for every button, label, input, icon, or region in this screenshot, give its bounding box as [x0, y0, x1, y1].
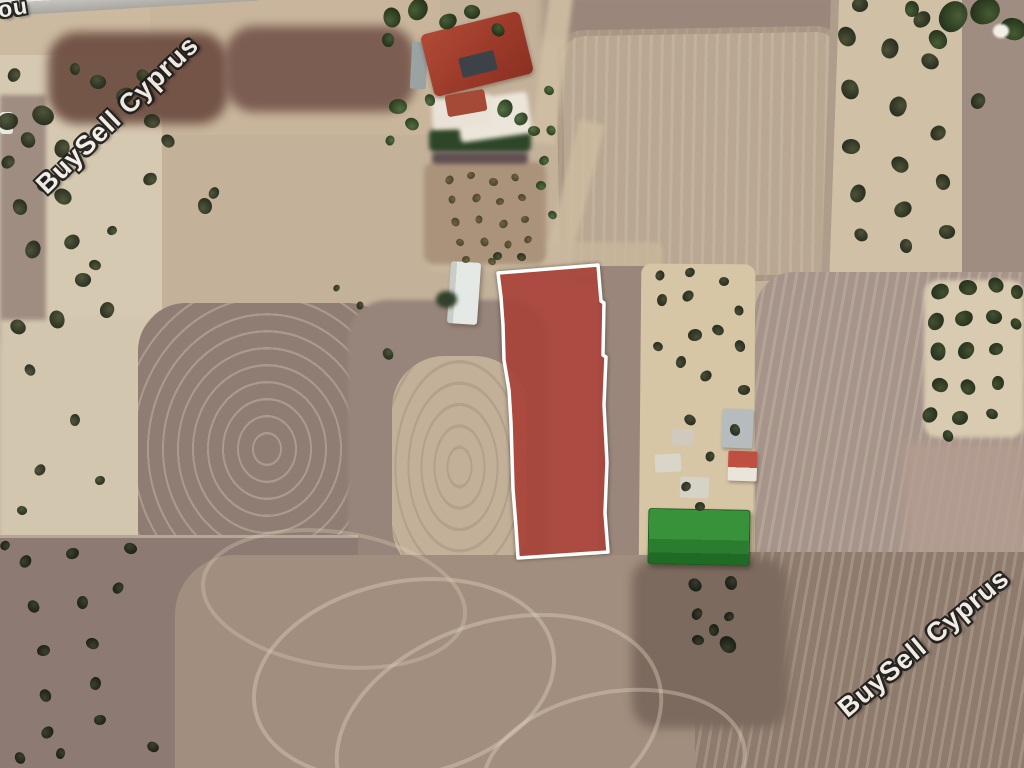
satellite-view: ou BuySell Cyprus BuySell Cyprus: [0, 0, 1024, 768]
highlighted-plot-overlay: [0, 0, 1024, 768]
plot-polygon: [498, 265, 608, 558]
